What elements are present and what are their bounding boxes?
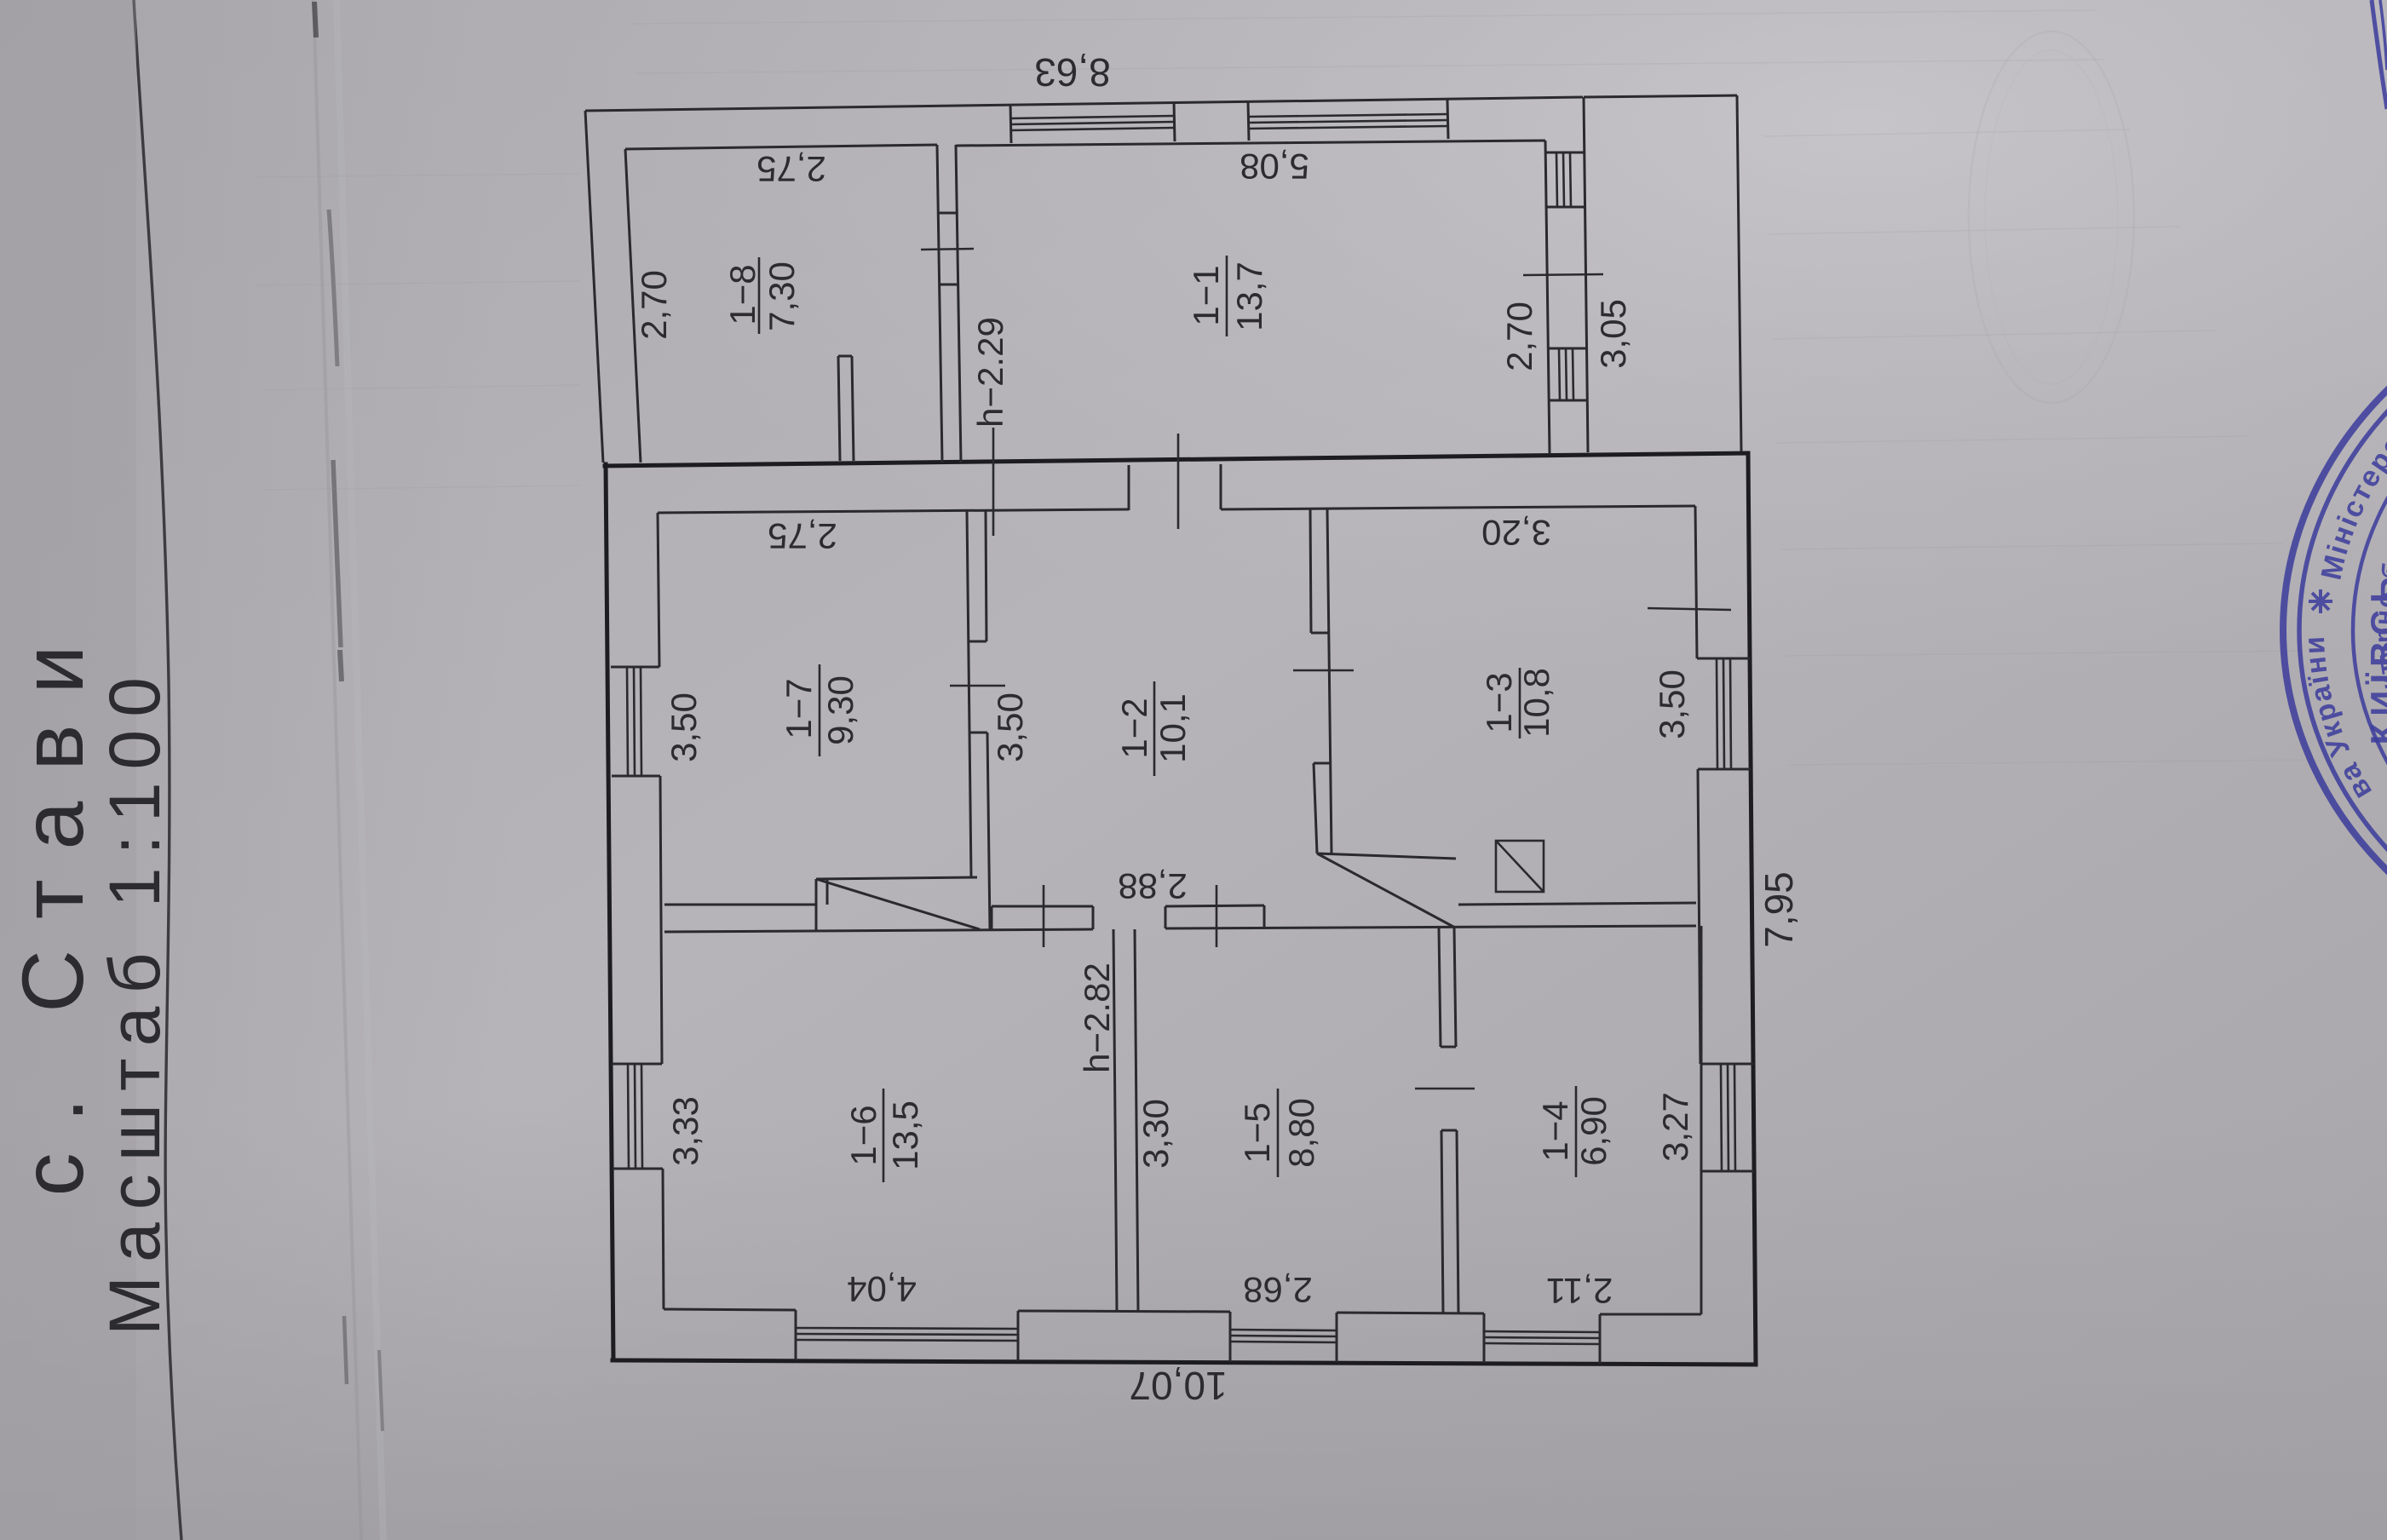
svg-text:3,27: 3,27 xyxy=(1655,1092,1695,1162)
svg-text:10,8: 10,8 xyxy=(1516,668,1556,738)
svg-text:3,50: 3,50 xyxy=(990,692,1030,762)
svg-text:1−2: 1−2 xyxy=(1114,698,1154,758)
svg-text:7,30: 7,30 xyxy=(762,261,802,331)
svg-text:1−1: 1−1 xyxy=(1186,265,1226,325)
svg-text:1−7: 1−7 xyxy=(779,678,819,738)
svg-text:2,70: 2,70 xyxy=(634,270,674,340)
svg-text:1−8: 1−8 xyxy=(722,264,762,325)
svg-text:8,80: 8,80 xyxy=(1281,1098,1321,1168)
svg-text:h−2.29: h−2.29 xyxy=(970,317,1010,428)
svg-text:5,08: 5,08 xyxy=(1240,147,1309,187)
svg-text:3,30: 3,30 xyxy=(1136,1099,1176,1169)
svg-text:h−2.82: h−2.82 xyxy=(1077,962,1117,1073)
svg-text:3,33: 3,33 xyxy=(665,1096,705,1166)
svg-text:2,11: 2,11 xyxy=(1546,1271,1613,1311)
svg-text:3,50: 3,50 xyxy=(664,692,704,762)
svg-text:1−3: 1−3 xyxy=(1479,672,1519,733)
svg-text:2,75: 2,75 xyxy=(768,516,837,556)
svg-text:4,04: 4,04 xyxy=(847,1269,917,1309)
svg-text:с. Стави: с. Стави xyxy=(4,615,101,1197)
svg-text:7,95: 7,95 xyxy=(1757,871,1801,948)
svg-text:8,63: 8,63 xyxy=(1034,50,1111,95)
svg-text:10,07: 10,07 xyxy=(1129,1364,1227,1408)
svg-text:3,20: 3,20 xyxy=(1481,513,1551,553)
svg-text:2,70: 2,70 xyxy=(1499,302,1539,371)
svg-text:2,75: 2,75 xyxy=(756,149,826,189)
svg-text:13,5: 13,5 xyxy=(885,1100,925,1170)
svg-text:КИЇВСЬ: КИЇВСЬ xyxy=(2363,571,2387,745)
svg-text:Масштаб 1:100: Масштаб 1:100 xyxy=(95,664,175,1336)
svg-text:13,7: 13,7 xyxy=(1229,261,1269,331)
svg-text:3,50: 3,50 xyxy=(1652,669,1692,739)
svg-text:1−4: 1−4 xyxy=(1535,1100,1575,1161)
svg-text:3,05: 3,05 xyxy=(1593,299,1633,369)
svg-text:1−6: 1−6 xyxy=(843,1105,883,1165)
svg-text:6,90: 6,90 xyxy=(1573,1096,1613,1166)
svg-text:2,68: 2,68 xyxy=(1243,1270,1313,1310)
svg-text:9,30: 9,30 xyxy=(820,675,860,745)
svg-text:2,88: 2,88 xyxy=(1118,866,1188,906)
svg-text:1−5: 1−5 xyxy=(1237,1102,1277,1163)
svg-text:10,1: 10,1 xyxy=(1153,693,1193,763)
